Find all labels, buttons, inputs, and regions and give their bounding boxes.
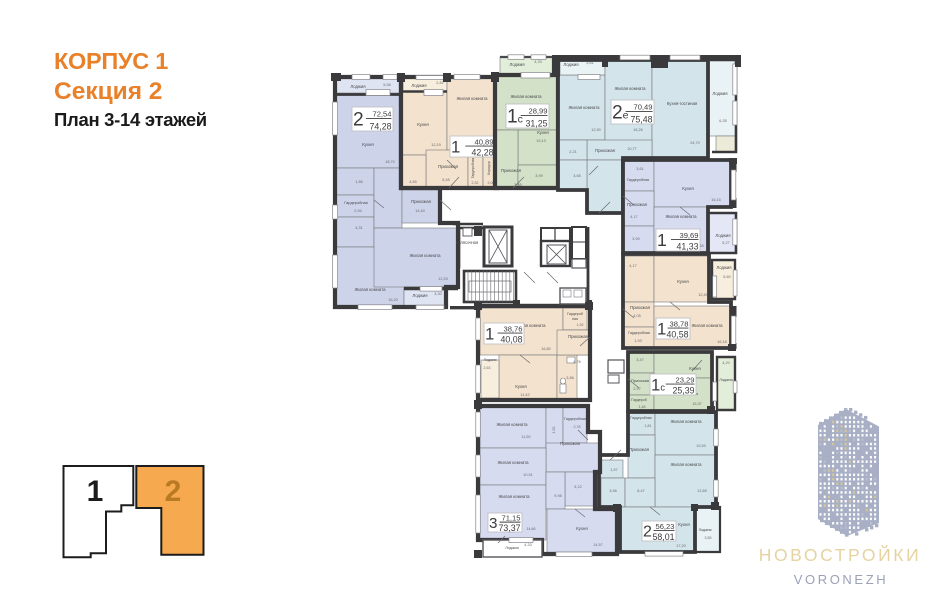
svg-text:1,86: 1,86 [355, 180, 362, 184]
svg-text:Жилая комната: Жилая комната [614, 86, 646, 91]
svg-text:42,28: 42,28 [471, 148, 493, 158]
svg-text:3,56: 3,56 [609, 489, 616, 493]
svg-text:16,80: 16,80 [541, 347, 551, 351]
svg-text:58,01: 58,01 [652, 532, 674, 542]
svg-text:3,61: 3,61 [636, 167, 643, 171]
svg-text:3,55: 3,55 [705, 536, 712, 540]
svg-text:38,76: 38,76 [503, 324, 522, 333]
svg-text:Кухня: Кухня [689, 366, 701, 371]
svg-text:11,50: 11,50 [521, 435, 530, 439]
svg-text:Жилая комната: Жилая комната [510, 94, 542, 99]
svg-text:1,92: 1,92 [577, 323, 584, 327]
svg-text:17,20: 17,20 [676, 544, 686, 548]
svg-text:Жилая комната: Жилая комната [670, 419, 702, 424]
svg-text:14,40: 14,40 [415, 209, 425, 213]
svg-text:2: 2 [643, 524, 652, 541]
svg-text:Лоджия: Лоджия [563, 62, 579, 67]
svg-text:10,91: 10,91 [523, 473, 533, 477]
svg-text:КОРПУС 1: КОРПУС 1 [54, 48, 168, 74]
svg-text:1: 1 [657, 319, 666, 338]
svg-text:5,45: 5,45 [442, 178, 449, 182]
svg-text:3,90: 3,90 [632, 237, 639, 241]
svg-text:4,33: 4,33 [524, 543, 531, 547]
svg-text:Лоджия: Лоджия [411, 83, 427, 88]
svg-text:4,17: 4,17 [630, 215, 637, 219]
svg-text:8,47: 8,47 [637, 489, 644, 493]
svg-text:VORONEZH: VORONEZH [794, 572, 888, 587]
svg-text:3,30: 3,30 [434, 292, 441, 296]
svg-text:12,90: 12,90 [591, 128, 601, 132]
svg-text:Жилая комната: Жилая комната [354, 287, 386, 292]
svg-text:38,78: 38,78 [669, 319, 688, 328]
svg-text:Лоджия: Лоджия [509, 62, 525, 67]
svg-text:1,93: 1,93 [634, 339, 641, 343]
svg-text:Гардеробная: Гардеробная [564, 417, 586, 421]
svg-text:71,15: 71,15 [501, 514, 520, 523]
svg-text:Прихожая: Прихожая [627, 202, 648, 207]
svg-text:Гардероб: Гардероб [631, 398, 646, 402]
svg-text:72,54: 72,54 [372, 110, 391, 119]
svg-text:1,53: 1,53 [552, 427, 556, 434]
svg-text:Прихожая: Прихожая [560, 441, 581, 446]
svg-text:41,33: 41,33 [676, 242, 698, 252]
svg-text:Гардеробная: Гардеробная [627, 178, 649, 182]
svg-text:Прихожая: Прихожая [630, 305, 651, 310]
svg-text:14,57: 14,57 [593, 543, 603, 547]
svg-text:Жилая комната: Жилая комната [498, 494, 530, 499]
svg-text:56,23: 56,23 [655, 522, 674, 531]
svg-text:16,26: 16,26 [633, 128, 643, 132]
svg-text:1: 1 [485, 324, 494, 343]
svg-text:9,98: 9,98 [554, 494, 561, 498]
svg-text:5,56: 5,56 [383, 83, 390, 87]
svg-text:Кухня: Кухня [417, 122, 429, 127]
svg-text:Лоджия: Лоджия [698, 528, 711, 532]
svg-text:2,21: 2,21 [569, 150, 576, 154]
svg-text:40,08: 40,08 [500, 335, 522, 345]
svg-text:28,99: 28,99 [528, 107, 547, 116]
svg-text:Гардеробная: Гардеробная [471, 158, 475, 179]
svg-text:Лоджия: Лоджия [715, 233, 731, 238]
svg-text:3: 3 [489, 515, 497, 532]
svg-text:15,37: 15,37 [692, 402, 702, 406]
svg-text:73,37: 73,37 [498, 523, 520, 533]
svg-text:19,13: 19,13 [536, 139, 546, 143]
svg-text:Лоджия: Лоджия [719, 378, 732, 382]
svg-text:План 3-14 этажей: План 3-14 этажей [54, 109, 207, 130]
svg-text:Жилая комната: Жилая комната [456, 96, 488, 101]
svg-text:18,70: 18,70 [385, 160, 395, 164]
svg-text:Прихожая: Прихожая [568, 334, 589, 339]
svg-text:39,69: 39,69 [679, 231, 698, 240]
svg-text:4,05: 4,05 [633, 314, 640, 318]
svg-text:24,70: 24,70 [690, 141, 700, 145]
svg-text:1,57: 1,57 [610, 468, 617, 472]
svg-text:16,20: 16,20 [388, 298, 398, 302]
svg-text:4,65: 4,65 [409, 180, 416, 184]
svg-text:3,61: 3,61 [586, 61, 593, 65]
svg-text:Жилая комната: Жилая комната [665, 214, 697, 219]
svg-text:70,49: 70,49 [633, 103, 652, 112]
svg-text:10,93: 10,93 [696, 444, 706, 448]
svg-text:16,15: 16,15 [711, 198, 721, 202]
svg-text:4,31: 4,31 [355, 226, 362, 230]
svg-text:Гардеробная: Гардеробная [344, 200, 368, 205]
svg-text:3,47: 3,47 [636, 358, 643, 362]
svg-text:Жилая комната: Жилая комната [670, 462, 702, 467]
svg-text:23,29: 23,29 [675, 375, 694, 384]
svg-text:Прихожая: Прихожая [411, 199, 432, 204]
svg-text:1: 1 [451, 137, 460, 156]
svg-text:12,89: 12,89 [697, 489, 707, 493]
svg-text:3,85: 3,85 [514, 183, 521, 187]
svg-text:Лоджия: Лоджия [505, 546, 518, 550]
svg-text:Кухня: Кухня [537, 130, 549, 135]
svg-text:Прихожая: Прихожая [629, 447, 650, 452]
svg-text:2: 2 [165, 475, 182, 508]
svg-text:1,81: 1,81 [645, 424, 652, 428]
svg-text:НОВОСТРОЙКИ: НОВОСТРОЙКИ [759, 544, 922, 565]
svg-text:3,99: 3,99 [535, 174, 542, 178]
svg-text:Кухня: Кухня [362, 142, 374, 147]
svg-text:1: 1 [657, 230, 667, 250]
svg-text:Лоджия: Лоджия [350, 84, 366, 89]
svg-text:5,27: 5,27 [722, 241, 729, 245]
svg-text:2,97: 2,97 [633, 387, 640, 391]
svg-text:2,32: 2,32 [472, 181, 479, 185]
svg-text:16,18: 16,18 [717, 340, 727, 344]
svg-text:5,60: 5,60 [723, 275, 730, 279]
svg-text:4,20: 4,20 [722, 361, 729, 365]
svg-text:Лоджия: Лоджия [483, 358, 496, 362]
svg-text:40,58: 40,58 [666, 330, 688, 340]
svg-text:Кухня: Кухня [682, 186, 694, 191]
svg-text:14,66: 14,66 [527, 527, 536, 531]
svg-text:Жилая комната: Жилая комната [496, 422, 528, 427]
svg-text:74,28: 74,28 [369, 122, 391, 132]
svg-text:40,89: 40,89 [474, 137, 493, 146]
svg-text:Лоджия: Лоджия [412, 293, 428, 298]
svg-text:Прихожая: Прихожая [631, 378, 649, 383]
svg-text:2,94: 2,94 [354, 209, 361, 213]
svg-text:Жилая комната: Жилая комната [568, 105, 600, 110]
svg-text:Лоджия: Лоджия [716, 265, 732, 270]
svg-text:1: 1 [87, 475, 104, 508]
svg-text:Жилая комната: Жилая комната [497, 460, 529, 465]
svg-text:Коридор: Коридор [487, 161, 491, 175]
svg-text:Гардероб: Гардероб [567, 312, 583, 316]
svg-text:12,45: 12,45 [698, 293, 708, 297]
svg-text:Кухня: Кухня [576, 526, 588, 531]
svg-text:Кухня: Кухня [515, 384, 527, 389]
svg-text:Жилая комната: Жилая комната [691, 323, 723, 328]
svg-text:ная: ная [572, 317, 578, 321]
svg-text:75,48: 75,48 [630, 115, 652, 125]
svg-text:12,93: 12,93 [438, 277, 448, 281]
svg-text:Гардеробная: Гардеробная [630, 416, 651, 420]
svg-text:Секция 2: Секция 2 [54, 78, 162, 105]
svg-text:1,48: 1,48 [639, 405, 646, 409]
svg-text:4,76: 4,76 [573, 360, 580, 364]
svg-text:3,65: 3,65 [573, 174, 580, 178]
svg-text:4,17: 4,17 [629, 264, 636, 268]
svg-text:31,25: 31,25 [525, 119, 547, 129]
svg-text:25,39: 25,39 [672, 386, 694, 396]
svg-text:5,22: 5,22 [574, 485, 581, 489]
svg-text:12,19: 12,19 [431, 143, 441, 147]
svg-text:2,82: 2,82 [436, 81, 443, 85]
svg-text:6,35: 6,35 [719, 119, 726, 123]
svg-text:10,77: 10,77 [627, 147, 637, 151]
svg-text:Гардеробная: Гардеробная [628, 331, 650, 335]
svg-text:Прихожая: Прихожая [595, 148, 616, 153]
svg-text:Кухня-гостиная: Кухня-гостиная [667, 101, 698, 106]
svg-text:Жилая комната: Жилая комната [409, 253, 441, 258]
svg-text:11,42: 11,42 [520, 393, 529, 397]
svg-text:3,86: 3,86 [566, 376, 573, 380]
svg-text:Лоджия: Лоджия [712, 91, 728, 96]
svg-text:2: 2 [353, 110, 364, 131]
svg-text:Колясочная: Колясочная [456, 240, 478, 245]
svg-text:Кухня: Кухня [677, 279, 689, 284]
svg-text:2,63: 2,63 [484, 366, 491, 370]
svg-text:4,33: 4,33 [534, 60, 541, 64]
svg-text:2,78: 2,78 [574, 425, 581, 429]
svg-text:Кухня: Кухня [678, 522, 690, 527]
svg-text:Прихожая: Прихожая [501, 168, 522, 173]
